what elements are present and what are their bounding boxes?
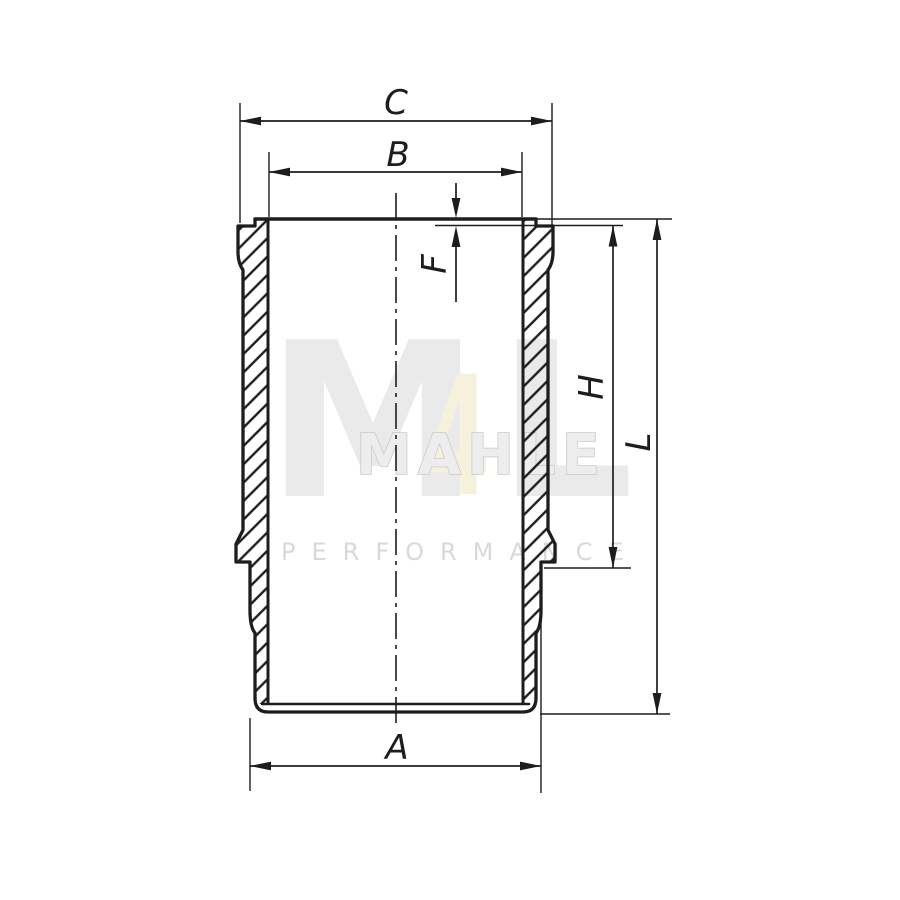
dim-b-arrow-right — [501, 168, 522, 177]
dim-c-label: C — [384, 83, 408, 123]
dim-a-arrow-right — [520, 762, 541, 771]
dim-f-arrow-up — [452, 226, 461, 247]
technical-drawing-page: M L 4 MAHLE PERFORMANCE — [0, 0, 900, 900]
dim-l-arrow-bottom — [653, 693, 662, 714]
dim-h-arrow-top — [609, 226, 618, 247]
dim-f-label: F — [415, 254, 455, 274]
dim-c-arrow-left — [240, 117, 261, 126]
mahle-watermark: M L 4 MAHLE PERFORMANCE — [266, 296, 640, 566]
dim-l-label: L — [619, 433, 659, 452]
dim-c-arrow-right — [531, 117, 552, 126]
dim-f-arrow-down — [452, 198, 461, 218]
dim-a-label: A — [383, 728, 408, 768]
cylinder-liner-diagram: M L 4 MAHLE PERFORMANCE — [0, 0, 900, 900]
dimension-f: F — [415, 183, 623, 302]
dimension-a: A — [250, 575, 541, 793]
dim-h-label: H — [572, 374, 612, 400]
watermark-performance-text: PERFORMANCE — [281, 538, 640, 566]
dim-b-arrow-left — [269, 168, 290, 177]
dim-a-arrow-left — [250, 762, 271, 771]
dim-b-label: B — [386, 135, 409, 175]
dim-l-arrow-top — [653, 219, 662, 240]
watermark-logo-row: MAHLE — [356, 423, 606, 488]
